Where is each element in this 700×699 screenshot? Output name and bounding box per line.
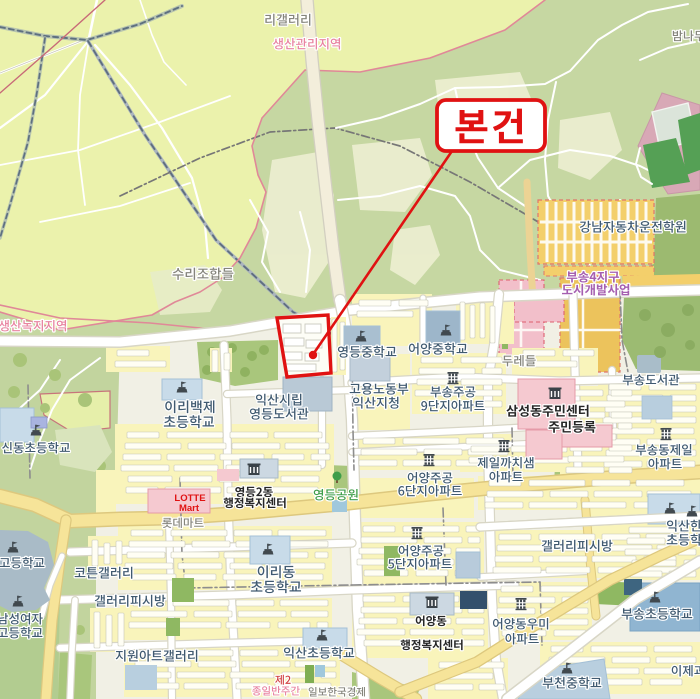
svg-text:Mart: Mart — [179, 503, 200, 514]
